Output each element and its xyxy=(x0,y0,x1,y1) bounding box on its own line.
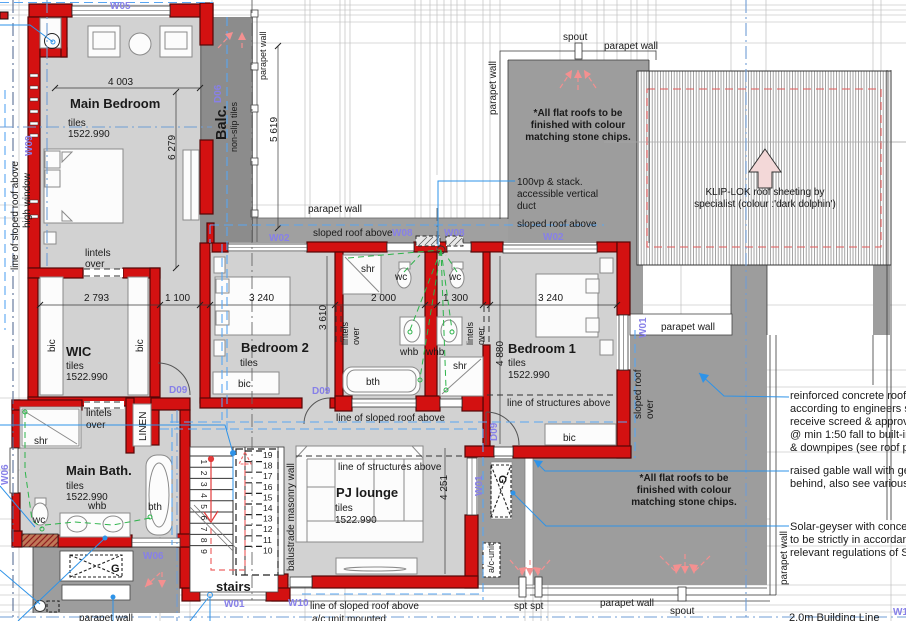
svg-text:W01: W01 xyxy=(224,599,245,610)
svg-text:W08: W08 xyxy=(444,228,465,239)
svg-text:wc: wc xyxy=(394,272,407,283)
svg-text:6 279: 6 279 xyxy=(167,135,178,160)
svg-text:whb: whb xyxy=(399,347,419,358)
svg-text:2.0m Building Line: 2.0m Building Line xyxy=(789,612,880,621)
svg-text:6: 6 xyxy=(199,516,209,521)
svg-text:100vp & stack.: 100vp & stack. xyxy=(517,177,583,188)
svg-text:wc: wc xyxy=(448,272,461,283)
svg-text:shr: shr xyxy=(361,264,376,275)
svg-text:line of structures above: line of structures above xyxy=(338,462,442,473)
svg-text:14: 14 xyxy=(263,503,273,513)
svg-text:D06: D06 xyxy=(213,84,224,103)
svg-text:lintels: lintels xyxy=(86,408,112,419)
svg-text:bth: bth xyxy=(366,377,380,388)
svg-text:bic: bic xyxy=(238,379,251,390)
svg-text:line of sloped roof above: line of sloped roof above xyxy=(10,161,21,270)
svg-text:& downpipes (see roof plan: & downpipes (see roof plan xyxy=(790,442,906,454)
svg-text:high window: high window xyxy=(22,172,33,228)
svg-text:W06: W06 xyxy=(0,464,11,485)
svg-text:parapet wall: parapet wall xyxy=(308,204,362,215)
svg-text:12: 12 xyxy=(263,524,273,534)
svg-text:3 610: 3 610 xyxy=(318,305,329,330)
svg-text:11: 11 xyxy=(263,535,272,545)
svg-text:G: G xyxy=(496,475,508,484)
svg-text:accessible vertical: accessible vertical xyxy=(517,189,598,200)
svg-text:relevant regulations of SAN: relevant regulations of SAN xyxy=(790,547,906,559)
svg-text:3 240: 3 240 xyxy=(249,293,274,304)
svg-text:specialist (colour :'dark dolp: specialist (colour :'dark dolphin') xyxy=(694,199,836,210)
svg-text:1522.990: 1522.990 xyxy=(68,129,110,140)
svg-text:stairs: stairs xyxy=(216,579,251,594)
svg-text:tiles: tiles xyxy=(335,503,353,514)
svg-text:lintels: lintels xyxy=(465,321,475,345)
svg-text:9: 9 xyxy=(199,549,209,554)
svg-text:W05: W05 xyxy=(110,1,131,12)
svg-text:tiles: tiles xyxy=(508,358,526,369)
svg-text:4 003: 4 003 xyxy=(108,77,133,88)
svg-text:10: 10 xyxy=(263,545,273,555)
svg-text:8: 8 xyxy=(199,538,209,543)
svg-text:balustrade masonry wall: balustrade masonry wall xyxy=(286,463,297,571)
svg-text:*All flat roofs to be: *All flat roofs to be xyxy=(534,108,623,119)
svg-text:parapet wall: parapet wall xyxy=(258,31,268,80)
svg-text:17: 17 xyxy=(263,471,273,481)
svg-text:according to engineers spe: according to engineers spe xyxy=(790,403,906,415)
svg-text:parapet wall: parapet wall xyxy=(661,322,715,333)
svg-text:matching stone chips.: matching stone chips. xyxy=(525,132,631,143)
svg-text:over: over xyxy=(476,327,486,345)
svg-text:W06: W06 xyxy=(143,551,164,562)
svg-text:D09: D09 xyxy=(312,386,331,397)
svg-text:3: 3 xyxy=(199,482,209,487)
svg-text:shr: shr xyxy=(34,436,49,447)
svg-text:finished with colour: finished with colour xyxy=(637,485,732,496)
svg-text:D09: D09 xyxy=(169,385,188,396)
svg-text:Solar-geyser with conceale: Solar-geyser with conceale xyxy=(790,521,906,533)
svg-text:5 619: 5 619 xyxy=(269,117,280,142)
svg-text:lintels: lintels xyxy=(340,321,350,345)
svg-text:whb: whb xyxy=(425,347,445,358)
svg-text:parapet wall: parapet wall xyxy=(779,531,790,585)
svg-text:lintels: lintels xyxy=(85,248,111,259)
svg-text:line of sloped roof above: line of sloped roof above xyxy=(310,601,419,612)
svg-text:tiles: tiles xyxy=(66,361,84,372)
svg-text:whb: whb xyxy=(87,501,107,512)
svg-text:line of sloped roof above: line of sloped roof above xyxy=(336,413,445,424)
svg-text:raised gable wall with geys: raised gable wall with geys xyxy=(790,465,906,477)
svg-text:sloped roof above: sloped roof above xyxy=(517,219,597,230)
svg-text:shr: shr xyxy=(453,361,468,372)
svg-text:D09: D09 xyxy=(489,422,500,441)
svg-text:bth: bth xyxy=(148,502,162,513)
svg-text:reinforced concrete roof. A: reinforced concrete roof. A xyxy=(790,390,906,402)
svg-text:18: 18 xyxy=(263,461,273,471)
svg-text:W01: W01 xyxy=(474,475,485,496)
svg-text:LINEN: LINEN xyxy=(138,412,149,441)
svg-text:parapet wall: parapet wall xyxy=(79,613,133,621)
svg-text:5: 5 xyxy=(199,504,209,509)
svg-text:tiles: tiles xyxy=(240,358,258,369)
svg-text:W09: W09 xyxy=(24,135,35,156)
svg-text:7: 7 xyxy=(199,527,209,532)
svg-text:Bedroom 2: Bedroom 2 xyxy=(241,340,309,355)
svg-text:1522.990: 1522.990 xyxy=(335,515,377,526)
svg-text:spout: spout xyxy=(563,32,588,43)
svg-text:4: 4 xyxy=(199,493,209,498)
svg-text:2: 2 xyxy=(199,471,209,476)
svg-text:*All flat roofs to be: *All flat roofs to be xyxy=(640,473,729,484)
svg-text:non-slip tiles: non-slip tiles xyxy=(229,101,239,152)
svg-text:Main Bath.: Main Bath. xyxy=(66,463,132,478)
svg-text:3 240: 3 240 xyxy=(538,293,563,304)
svg-text:parapet wall: parapet wall xyxy=(488,61,499,115)
svg-text:a/c-unit: a/c-unit xyxy=(486,543,496,573)
svg-text:Bedroom 1: Bedroom 1 xyxy=(508,341,576,356)
svg-text:tiles: tiles xyxy=(68,118,86,129)
svg-text:2 793: 2 793 xyxy=(84,293,109,304)
svg-text:parapet wall: parapet wall xyxy=(600,598,654,609)
svg-text:to be strictly in accordance: to be strictly in accordance xyxy=(790,534,906,546)
svg-text:16: 16 xyxy=(263,482,273,492)
svg-text:KLIP-LOK roof sheeting by: KLIP-LOK roof sheeting by xyxy=(706,187,825,198)
svg-text:W02: W02 xyxy=(543,232,564,243)
svg-text:duct: duct xyxy=(517,201,536,212)
svg-text:over: over xyxy=(351,327,361,345)
svg-text:19: 19 xyxy=(263,450,273,460)
svg-text:Balc.: Balc. xyxy=(214,105,230,140)
svg-text:13: 13 xyxy=(263,514,273,524)
svg-text:bic: bic xyxy=(47,339,58,352)
svg-text:parapet wall: parapet wall xyxy=(604,41,658,52)
svg-text:W01: W01 xyxy=(638,317,649,338)
svg-text:receive screed & approved: receive screed & approved xyxy=(790,416,906,428)
svg-text:1 100: 1 100 xyxy=(165,293,190,304)
svg-text:W10: W10 xyxy=(288,598,309,609)
svg-text:a/c unit mounted: a/c unit mounted xyxy=(312,614,386,621)
svg-text:over: over xyxy=(86,420,106,431)
svg-text:W02: W02 xyxy=(269,233,290,244)
svg-text:15: 15 xyxy=(263,492,273,502)
svg-text:1522.990: 1522.990 xyxy=(66,372,108,383)
svg-text:line of structures above: line of structures above xyxy=(507,398,611,409)
svg-text:1522.990: 1522.990 xyxy=(508,370,550,381)
svg-text:Main Bedroom: Main Bedroom xyxy=(70,96,160,111)
svg-text:1: 1 xyxy=(199,460,209,465)
svg-text:wc: wc xyxy=(32,515,45,526)
svg-text:PJ lounge: PJ lounge xyxy=(336,485,398,500)
svg-text:tiles: tiles xyxy=(66,481,84,492)
svg-text:over: over xyxy=(85,259,105,270)
svg-text:spout: spout xyxy=(670,606,695,617)
svg-text:sloped roof above: sloped roof above xyxy=(313,228,393,239)
svg-text:over: over xyxy=(645,399,656,419)
svg-text:G: G xyxy=(111,563,120,575)
svg-text:matching stone chips.: matching stone chips. xyxy=(631,497,737,508)
svg-text:2 000: 2 000 xyxy=(371,293,396,304)
svg-text:4 880: 4 880 xyxy=(495,341,506,366)
svg-text:bic: bic xyxy=(563,433,576,444)
svg-text:sloped roof: sloped roof xyxy=(633,369,644,419)
svg-text:spt spt: spt spt xyxy=(514,601,544,612)
svg-text:bic: bic xyxy=(135,339,146,352)
svg-text:behind, also see various pl: behind, also see various pl xyxy=(790,478,906,490)
svg-text:1 300: 1 300 xyxy=(443,293,468,304)
svg-text:WIC: WIC xyxy=(66,344,92,359)
svg-text:W1: W1 xyxy=(893,607,906,618)
svg-text:finished with colour: finished with colour xyxy=(531,120,626,131)
svg-text:@ min 1:50 fall to built-in d: @ min 1:50 fall to built-in d xyxy=(790,429,906,441)
svg-text:4 251: 4 251 xyxy=(439,475,450,500)
svg-text:W08: W08 xyxy=(392,228,413,239)
